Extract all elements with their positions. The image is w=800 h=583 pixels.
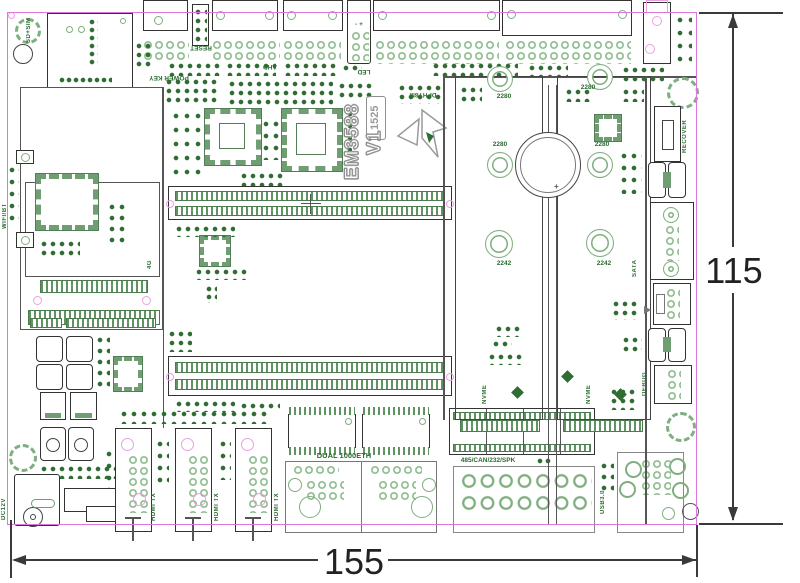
recover-label: RECOVER xyxy=(682,110,688,162)
top-connector-1 xyxy=(143,0,188,31)
rj45-dual-jack xyxy=(285,461,437,533)
top-connector-5 xyxy=(502,0,632,36)
dim-arrow-down xyxy=(728,507,738,521)
alignment-hole xyxy=(166,200,174,208)
m2-2242-label: 2242 xyxy=(590,260,618,267)
inductor xyxy=(36,336,63,362)
dim-arrow-right xyxy=(682,555,696,565)
component-cluster xyxy=(565,88,591,102)
alignment-hole xyxy=(121,438,134,451)
audio-jack-cap xyxy=(646,0,668,13)
mosfet xyxy=(40,392,66,420)
qfp-chip xyxy=(205,109,261,165)
center-mark xyxy=(310,194,311,214)
usb3-label: USB3.0 xyxy=(600,488,606,516)
mosfet xyxy=(70,392,97,420)
chip-body xyxy=(296,123,326,155)
component-cluster xyxy=(168,330,192,352)
component-cluster xyxy=(492,340,512,350)
wifi-chip xyxy=(36,174,98,230)
component-cluster xyxy=(536,457,552,465)
dim-width-line xyxy=(14,559,318,561)
alignment-hole xyxy=(166,373,174,381)
ahd-label: AHD xyxy=(258,63,282,70)
mount-hole-pattern xyxy=(666,412,696,442)
nvme-label-b: NVME xyxy=(586,378,592,410)
hdmi-connector-2 xyxy=(175,428,212,532)
pin-column xyxy=(667,369,681,402)
switch-button xyxy=(21,153,30,162)
pcb-assembly-drawing: { "drawing": { "board_name": "EM3588 V1"… xyxy=(0,0,800,583)
jack-divider xyxy=(361,462,362,532)
switch-button xyxy=(21,236,30,245)
reset-label: RESET xyxy=(183,44,219,51)
dc-slot xyxy=(31,499,55,508)
component-cluster xyxy=(108,203,128,243)
inductor-core xyxy=(46,438,60,452)
hdmi-tx-label-2: HDMI TX xyxy=(214,488,220,526)
mount-hole xyxy=(619,481,636,498)
hdmi-tx-label-1: HDMI TX xyxy=(151,488,157,526)
component-cluster xyxy=(96,336,110,391)
alignment-hole xyxy=(133,493,146,506)
component-cluster xyxy=(610,388,638,410)
chip-body xyxy=(219,123,245,149)
m2-2280-label: 2280 xyxy=(486,141,514,148)
mpcie-finger-row xyxy=(40,280,148,293)
mark xyxy=(192,517,194,541)
pin-hole xyxy=(328,11,337,20)
dim-height-line xyxy=(732,293,734,520)
pin-1-mark xyxy=(345,418,352,425)
pin-row xyxy=(175,362,445,373)
mosfet-pad xyxy=(45,413,61,418)
component-cluster xyxy=(620,152,642,194)
usb3-connector xyxy=(617,452,684,533)
board-corner-mark xyxy=(8,12,15,19)
latch-key xyxy=(663,172,671,188)
power-key-label: POWER KEY xyxy=(144,74,194,81)
finger-row xyxy=(30,318,62,328)
mount-hole xyxy=(662,507,675,520)
alignment-hole xyxy=(33,296,42,305)
key-slot xyxy=(656,294,665,314)
component-cluster xyxy=(156,440,169,484)
alignment-hole xyxy=(253,493,266,506)
dim-width-value: 155 xyxy=(320,541,388,583)
mount-hole xyxy=(625,461,642,478)
pin-hole xyxy=(378,11,387,20)
pin-1-mark xyxy=(419,418,426,425)
mount-hole xyxy=(669,458,686,475)
component-cluster xyxy=(228,80,333,106)
dim-ext-line xyxy=(10,520,12,578)
pin-grid xyxy=(378,480,416,502)
m2-2280-label: 2280 xyxy=(588,141,616,148)
mount-hole xyxy=(299,496,321,518)
pin-column xyxy=(665,225,679,261)
pin-row xyxy=(363,407,429,415)
alignment-hole xyxy=(446,373,454,381)
diode-row xyxy=(284,62,336,76)
inductor xyxy=(40,427,66,461)
triangle-mark xyxy=(644,306,651,314)
dc-jack xyxy=(14,474,60,526)
mount-hole xyxy=(411,496,433,518)
led-polarity-label: - + xyxy=(350,21,368,28)
dphy8m-label: DPHY8M xyxy=(406,91,440,98)
standoff-2280 xyxy=(487,152,513,178)
component-cluster xyxy=(495,325,523,337)
component-cluster xyxy=(165,78,220,104)
standoff-2242 xyxy=(485,230,513,258)
pin-hole xyxy=(154,16,163,25)
mount-hole xyxy=(672,482,689,499)
component-cluster xyxy=(8,166,19,224)
rev-code-box: 1525 xyxy=(366,96,386,140)
pin-row xyxy=(453,444,591,452)
alignment-hole xyxy=(241,438,254,451)
pin-hole xyxy=(487,11,496,20)
alignment-hole xyxy=(446,200,454,208)
standoff-2280 xyxy=(587,152,613,178)
pin-row xyxy=(289,407,355,415)
component-cluster xyxy=(622,336,642,352)
dim-height-value: 115 xyxy=(702,250,766,292)
component-cluster xyxy=(600,462,614,492)
inductor-core xyxy=(74,438,88,452)
pin-hole xyxy=(120,18,126,24)
component-cluster xyxy=(240,172,285,186)
m2-2280-label: 2280 xyxy=(490,93,518,100)
mount-hole-pattern xyxy=(667,77,699,109)
dim-arrow-left xyxy=(12,555,26,565)
center-mark xyxy=(301,203,321,204)
mount-hole-pattern xyxy=(9,444,37,472)
board-name-silkscreen: EM3588 V1 xyxy=(342,93,366,191)
finger-row xyxy=(66,318,156,328)
battery-plus-mark: + xyxy=(554,182,559,191)
qfn-chip xyxy=(595,115,621,141)
nvme-label-a: NVME xyxy=(482,378,488,410)
eth-transformer-1 xyxy=(288,414,356,448)
serial-label: 485/CAN/232/SPK xyxy=(448,457,528,464)
terminal-holes xyxy=(460,472,592,516)
mount-hole xyxy=(663,261,679,277)
mount-hole xyxy=(13,44,33,64)
m2-edge-connector xyxy=(460,420,540,432)
region-line xyxy=(645,76,647,525)
component-cluster xyxy=(488,353,524,365)
audio-hole xyxy=(645,44,655,54)
pin-row xyxy=(175,379,445,390)
hdmi-tx-label-3: HDMI TX xyxy=(274,488,280,526)
inductor xyxy=(36,364,63,390)
m2-2242-label: 2242 xyxy=(490,260,518,267)
component-cluster xyxy=(622,88,644,102)
inductor xyxy=(66,336,93,362)
pin-hole xyxy=(618,10,627,19)
module-boundary xyxy=(163,87,164,428)
eth-transformer-2 xyxy=(362,414,430,448)
pin-header-row xyxy=(375,40,499,64)
inductor xyxy=(66,364,93,390)
mount-pin xyxy=(422,478,436,492)
terminal-block xyxy=(453,466,595,533)
alignment-hole xyxy=(142,296,151,305)
logo xyxy=(395,103,449,161)
inductor xyxy=(68,427,94,461)
qfn-chip xyxy=(200,236,230,266)
tact-switch xyxy=(16,232,34,248)
sata-data-connector xyxy=(653,283,691,325)
tact-switch xyxy=(16,150,34,164)
sd-sim-label: SD+SIM xyxy=(26,15,32,45)
contact-row xyxy=(88,18,98,66)
component-cluster xyxy=(612,300,640,320)
recover-button xyxy=(654,106,681,162)
dim-ext-line xyxy=(699,12,783,14)
hdmi-connector-1 xyxy=(115,428,152,532)
dim-ext-line xyxy=(699,523,783,525)
component-cluster xyxy=(676,16,692,64)
pin-hole xyxy=(507,10,516,19)
component-cluster xyxy=(194,8,207,42)
m2-edge-connector xyxy=(563,420,643,432)
pmic-chip xyxy=(114,357,142,391)
dim-width-line xyxy=(388,559,696,561)
pin-header-row xyxy=(212,40,280,62)
audio-hole xyxy=(652,16,662,26)
button-cap xyxy=(662,120,674,150)
component-cluster xyxy=(195,268,250,280)
dim-height-line xyxy=(732,14,734,247)
debug-connector xyxy=(654,365,692,404)
rev-code: 1525 xyxy=(369,99,383,137)
contact-row xyxy=(58,76,112,85)
standoff-2280 xyxy=(487,66,513,92)
component-cluster xyxy=(172,112,202,180)
qfp-chip xyxy=(282,109,342,171)
component-cluster xyxy=(460,86,482,102)
sata-label: SATA xyxy=(632,255,638,281)
mark xyxy=(132,517,134,541)
corner-hole xyxy=(682,503,699,520)
component-cluster xyxy=(40,240,80,256)
pin-hole xyxy=(216,11,225,20)
region-line xyxy=(443,76,445,420)
pin-row xyxy=(370,465,422,477)
component-cluster xyxy=(120,410,270,424)
pin-hole xyxy=(287,11,296,20)
led-connector: - + xyxy=(347,0,371,64)
pin-hole xyxy=(265,11,274,20)
pin-hole xyxy=(78,26,85,33)
4g-label: 4G xyxy=(147,256,153,272)
dc12v-label: DC12V xyxy=(1,494,7,524)
mount-pin xyxy=(288,478,302,492)
dim-ext-line xyxy=(696,525,698,577)
btb-connector-1 xyxy=(168,186,452,220)
hdmi-connector-3 xyxy=(235,428,272,532)
led-pin-array xyxy=(351,31,369,61)
pin-header-row xyxy=(283,40,341,62)
dc-pin xyxy=(30,514,36,520)
power-connector xyxy=(86,506,118,522)
component-cluster xyxy=(262,120,280,160)
dual-eth-label: DUAL 1000ETH xyxy=(302,451,386,460)
top-connector-4 xyxy=(373,0,500,31)
debug-label: DEBUG xyxy=(642,366,648,402)
standoff-2242 xyxy=(586,229,614,257)
mosfet-pad xyxy=(75,413,92,418)
component-cluster xyxy=(135,42,153,68)
pin-row xyxy=(293,465,339,477)
component-cluster xyxy=(105,450,115,488)
btb-connector-2 xyxy=(168,356,452,396)
latch-key xyxy=(663,337,671,352)
component-cluster xyxy=(219,440,231,480)
pin-header-row xyxy=(505,40,631,64)
component-cluster xyxy=(175,225,235,237)
mount-hole xyxy=(663,207,679,223)
sata-power-connector xyxy=(650,202,694,280)
alignment-hole xyxy=(193,493,206,506)
alignment-hole xyxy=(181,438,194,451)
dim-arrow-up xyxy=(728,14,738,28)
pin-column xyxy=(666,288,680,322)
mark xyxy=(252,517,254,541)
led-label: LED xyxy=(354,68,374,75)
component-cluster xyxy=(205,285,217,303)
pin-hole xyxy=(66,26,73,33)
battery-inner xyxy=(520,137,576,193)
